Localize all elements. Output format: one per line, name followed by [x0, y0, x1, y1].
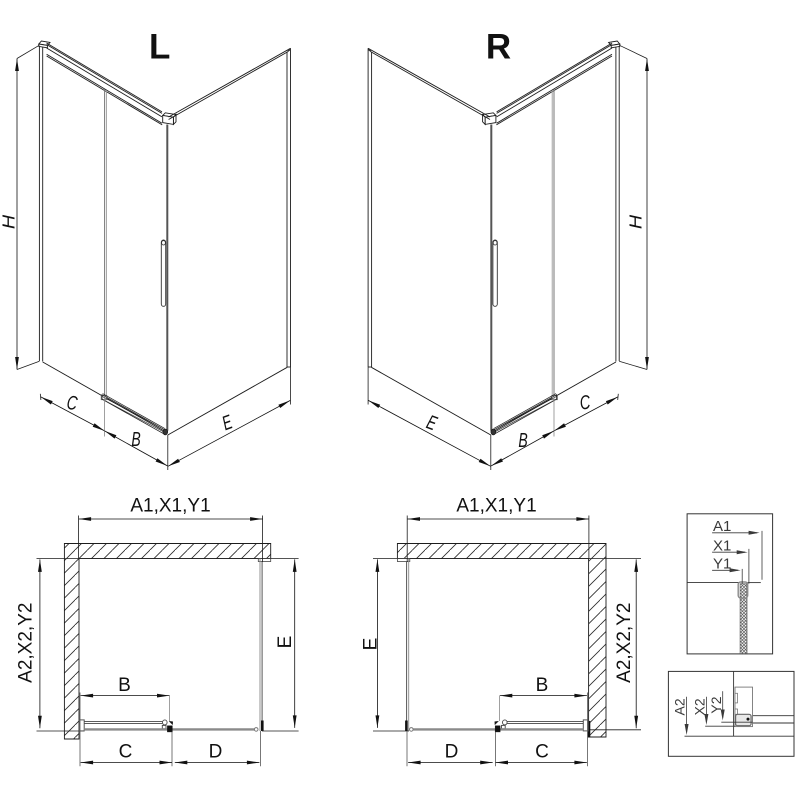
- svg-text:L: L: [149, 28, 170, 67]
- svg-text:C: C: [535, 742, 549, 763]
- svg-text:C: C: [119, 742, 133, 763]
- svg-text:A2: A2: [672, 698, 688, 715]
- svg-text:A2,X2,Y2: A2,X2,Y2: [16, 603, 37, 683]
- svg-text:A1,X1,Y1: A1,X1,Y1: [130, 496, 210, 517]
- svg-text:E: E: [361, 638, 382, 651]
- svg-text:X2: X2: [692, 698, 708, 715]
- svg-text:H: H: [0, 214, 19, 229]
- svg-text:B: B: [518, 428, 528, 451]
- svg-text:A1,X1,Y1: A1,X1,Y1: [456, 496, 536, 517]
- svg-text:E: E: [219, 410, 236, 435]
- svg-text:D: D: [209, 742, 223, 763]
- svg-text:R: R: [486, 28, 511, 67]
- svg-text:E: E: [424, 410, 441, 435]
- svg-text:C: C: [65, 391, 79, 415]
- svg-text:H: H: [626, 214, 646, 229]
- svg-text:E: E: [275, 636, 296, 649]
- svg-text:Y1: Y1: [713, 555, 731, 572]
- svg-text:A2,X2,Y2: A2,X2,Y2: [614, 603, 635, 683]
- svg-text:B: B: [131, 427, 141, 450]
- svg-text:B: B: [536, 675, 549, 696]
- svg-text:D: D: [445, 742, 459, 763]
- svg-text:B: B: [118, 675, 131, 696]
- svg-text:C: C: [578, 390, 592, 414]
